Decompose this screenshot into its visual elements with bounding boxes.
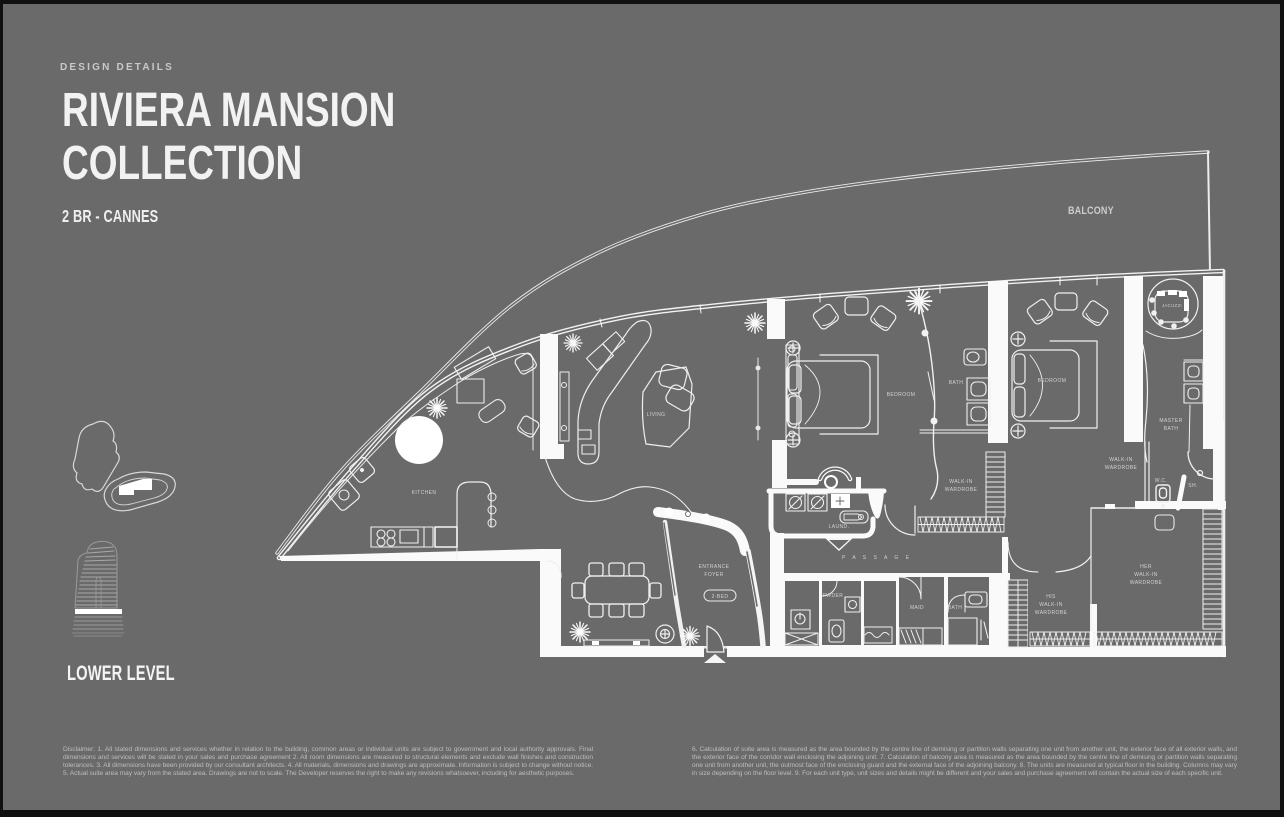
svg-text:WARDROBE: WARDROBE: [1105, 465, 1138, 471]
svg-text:FOYER: FOYER: [704, 572, 723, 578]
svg-text:LIVING: LIVING: [647, 412, 666, 418]
svg-text:BATH: BATH: [949, 380, 964, 386]
svg-text:PWDER: PWDER: [823, 593, 844, 599]
svg-text:P A S S A G E: P A S S A G E: [842, 555, 912, 561]
svg-text:BATH: BATH: [948, 605, 963, 611]
svg-text:WALK-IN: WALK-IN: [1039, 602, 1062, 608]
svg-text:MASTER: MASTER: [1159, 418, 1182, 424]
svg-text:HIS: HIS: [1046, 594, 1056, 600]
svg-text:BEDROOM: BEDROOM: [1038, 378, 1067, 384]
svg-text:WARDROBE: WARDROBE: [945, 487, 978, 493]
svg-text:BEDROOM: BEDROOM: [887, 392, 916, 398]
svg-text:HER: HER: [1140, 564, 1152, 570]
svg-text:WALK-IN: WALK-IN: [949, 479, 972, 485]
svg-text:W.C.: W.C.: [1155, 478, 1167, 484]
svg-text:SH.: SH.: [1188, 483, 1198, 489]
svg-text:WARDROBE: WARDROBE: [1035, 610, 1068, 616]
svg-text:ENTRANCE: ENTRANCE: [699, 564, 730, 570]
svg-text:WARDROBE: WARDROBE: [1130, 580, 1163, 586]
svg-text:BATH: BATH: [1164, 426, 1179, 432]
svg-text:LAUND.: LAUND.: [829, 524, 850, 530]
svg-text:KITCHEN: KITCHEN: [412, 490, 437, 496]
svg-text:WALK-IN: WALK-IN: [1134, 572, 1157, 578]
svg-text:JACUZZI: JACUZZI: [1162, 303, 1182, 308]
svg-text:2-BED: 2-BED: [712, 594, 729, 600]
svg-text:WALK-IN: WALK-IN: [1109, 457, 1132, 463]
svg-text:MAID: MAID: [910, 605, 924, 611]
